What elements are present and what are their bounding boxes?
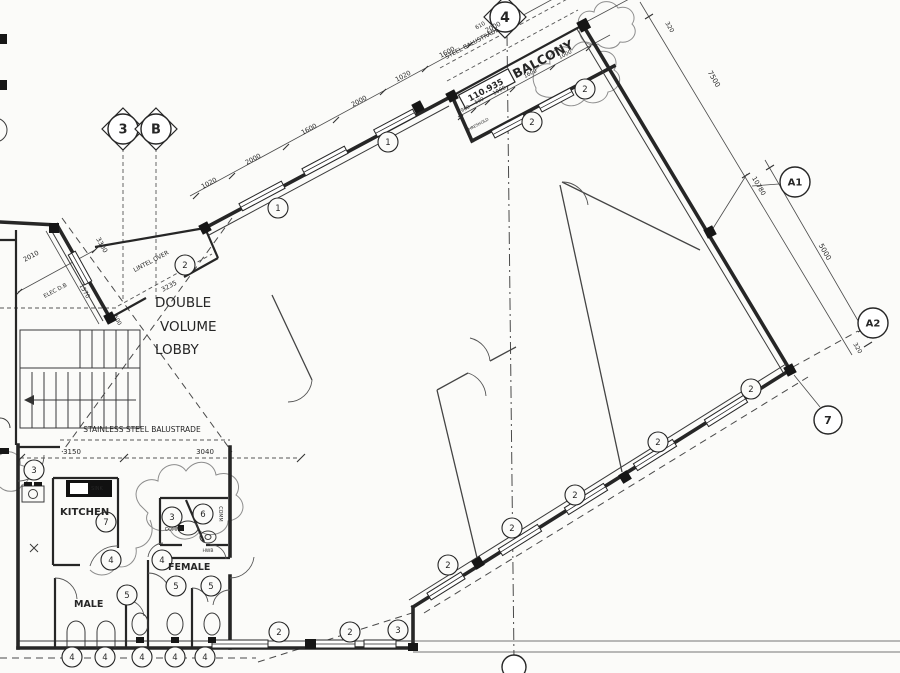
dim-label: 320 xyxy=(663,21,675,35)
dashed-lines xyxy=(0,0,858,662)
grid-label: A2 xyxy=(866,319,881,330)
room-label-lobby-3: LOBBY xyxy=(155,342,199,358)
keynote-4: 4 xyxy=(195,647,215,667)
keynote-number: 1 xyxy=(385,138,390,148)
keynote-4: 4 xyxy=(101,550,121,570)
keynote-number: 2 xyxy=(572,491,577,501)
room-label-lobby-2: VOLUME xyxy=(160,319,217,335)
keynote-4: 4 xyxy=(95,647,115,667)
grid-bubble-7: 7 xyxy=(814,406,842,434)
anno-stainless-balustrade: STAINLESS STEEL BALUSTRADE xyxy=(83,425,201,434)
keynote-2: 2 xyxy=(522,112,542,132)
grid-bubble-A2: A2 xyxy=(858,308,888,338)
keynote-number: 3 xyxy=(31,466,36,476)
interior-walls xyxy=(53,182,700,648)
keynote-number: 5 xyxy=(208,582,213,592)
keynote-4: 4 xyxy=(132,647,152,667)
fixture-label-hwb: HWB xyxy=(203,548,214,554)
dim-label: 2010 xyxy=(22,249,40,264)
grid-bubble-A1: A1 xyxy=(780,167,810,197)
keynote-2: 2 xyxy=(340,622,360,642)
keynote-4: 4 xyxy=(165,647,185,667)
keynote-number: 5 xyxy=(173,582,178,592)
keynote-2: 2 xyxy=(438,555,458,575)
grid-label: 4 xyxy=(500,10,510,26)
keynote-1: 1 xyxy=(268,198,288,218)
keynote-number: 1 xyxy=(275,204,280,214)
dim-label: 320 xyxy=(851,342,863,356)
keynote-number: 4 xyxy=(172,653,177,663)
keynote-number: 3 xyxy=(395,626,400,636)
keynote-2: 2 xyxy=(565,485,585,505)
dim-label: 1570 xyxy=(78,283,92,300)
keynote-number: 2 xyxy=(445,561,450,571)
keynote-number: 4 xyxy=(139,653,144,663)
keynote-number: 4 xyxy=(202,653,207,663)
keynote-2: 2 xyxy=(741,379,761,399)
keynote-number: 2 xyxy=(529,118,534,128)
keynote-1: 1 xyxy=(378,132,398,152)
room-label-comms: COMMS xyxy=(165,527,183,533)
room-label-lobby-1: DOUBLE xyxy=(155,295,211,311)
keynote-number: 7 xyxy=(103,518,108,528)
keynote-number: 2 xyxy=(582,85,587,95)
grid-circle xyxy=(502,655,526,673)
stair-direction-arrow xyxy=(24,395,34,405)
dim-label: 3300 xyxy=(94,236,109,254)
dim-label: 3040 xyxy=(196,448,214,456)
grid-bubble-cut xyxy=(502,655,526,673)
keynote-number: 2 xyxy=(276,628,281,638)
dim-label: 7500 xyxy=(706,69,722,88)
grid-label: A1 xyxy=(788,178,803,189)
label-layer: DOUBLEVOLUMELOBBYKITCHENMALEFEMALEBALCON… xyxy=(22,20,863,610)
dim-label: 3150 xyxy=(63,448,81,456)
keynote-number: 5 xyxy=(124,591,129,601)
floor-plan-drawing: 1122222222223334444444555673B4A1A27 DOUB… xyxy=(0,0,900,673)
keynote-number: 2 xyxy=(347,628,352,638)
keynote-2: 2 xyxy=(648,432,668,452)
grid-label: 3 xyxy=(118,123,127,138)
room-label-male: MALE xyxy=(74,599,103,610)
grid-bubble-B: B xyxy=(135,108,177,150)
keynote-2: 2 xyxy=(502,518,522,538)
dim-label: 1020 xyxy=(394,69,412,84)
keynote-number: 6 xyxy=(200,510,205,520)
keynote-3: 3 xyxy=(388,620,408,640)
grid-label: B xyxy=(151,123,161,138)
keynote-number: 2 xyxy=(655,438,660,448)
keynote-number: 4 xyxy=(159,556,164,566)
anno-lintel-over: LINTEL OVER xyxy=(132,249,170,273)
keynote-3: 3 xyxy=(162,507,182,527)
keynote-5: 5 xyxy=(166,576,186,596)
keynote-3: 3 xyxy=(24,460,44,480)
room-label-comm: COMM xyxy=(217,506,223,521)
dim-label: 5000 xyxy=(817,242,833,261)
keynote-2: 2 xyxy=(175,255,195,275)
dim-label: 2000 xyxy=(244,152,262,167)
grid-label: 7 xyxy=(824,414,832,427)
keynote-5: 5 xyxy=(117,585,137,605)
anno-threshold: THRESHOLD xyxy=(464,117,489,134)
dim-label: 2000 xyxy=(350,94,368,109)
room-label-kitchen: KITCHEN xyxy=(60,507,109,518)
dim-label: 1600 xyxy=(300,122,318,137)
dim-label: 1020 xyxy=(200,176,218,191)
label-elec-db: ELEC D.B xyxy=(43,282,68,299)
floor-plan-canvas: 1122222222223334444444555673B4A1A27 DOUB… xyxy=(0,0,900,673)
keynote-number: 4 xyxy=(102,653,107,663)
keynote-6: 6 xyxy=(193,504,213,524)
fixture-label-sink: SINK xyxy=(91,486,103,492)
staircase xyxy=(20,330,140,428)
keynote-number: 2 xyxy=(182,261,187,271)
keynote-2: 2 xyxy=(575,79,595,99)
keynote-5: 5 xyxy=(201,576,221,596)
keynote-number: 4 xyxy=(69,653,74,663)
keynote-number: 2 xyxy=(509,524,514,534)
keynote-number: 2 xyxy=(748,385,753,395)
keynote-2: 2 xyxy=(269,622,289,642)
keynote-4: 4 xyxy=(62,647,82,667)
keynote-number: 4 xyxy=(108,556,113,566)
exterior-walls-main xyxy=(205,25,790,648)
room-label-female: FEMALE xyxy=(168,562,210,573)
keynote-number: 3 xyxy=(169,513,174,523)
